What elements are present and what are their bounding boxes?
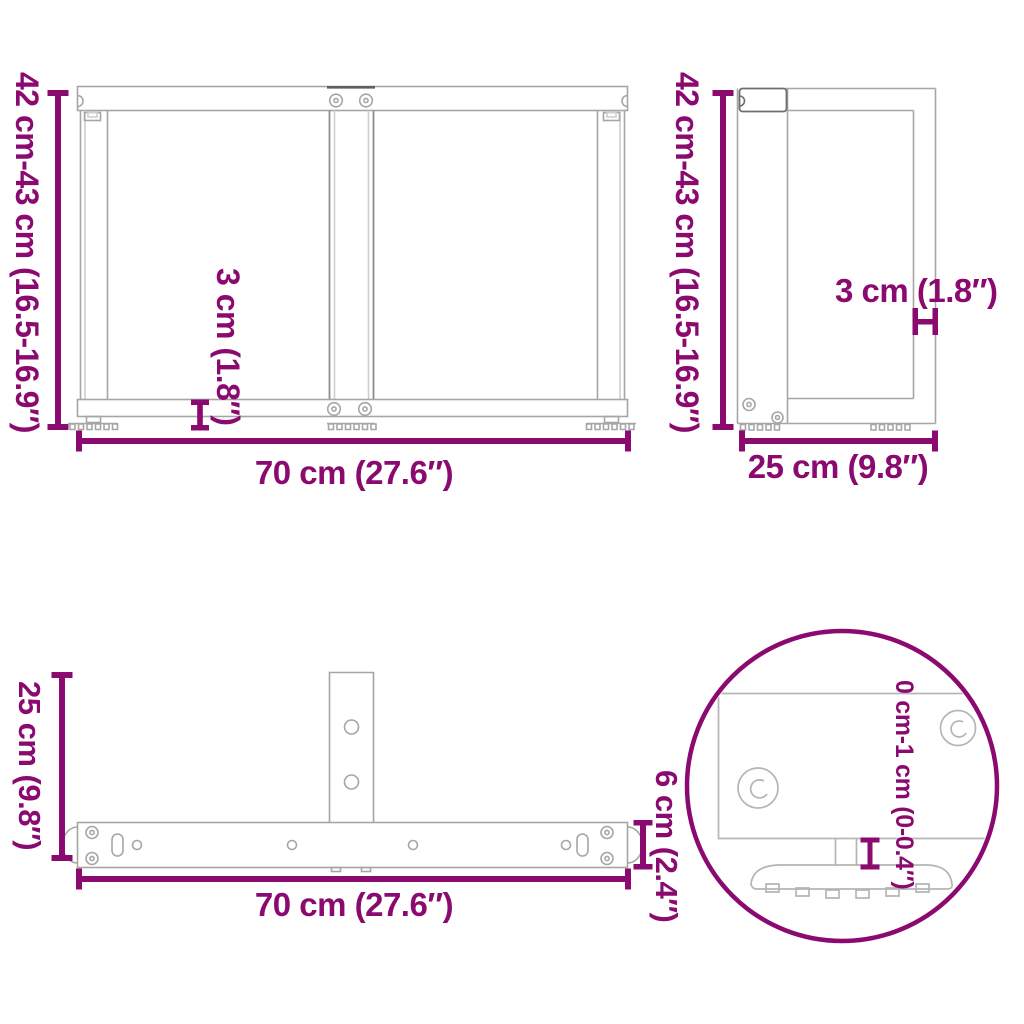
side-height-dimension-label: 42 cm-43 cm (16.5-16.9″)	[671, 72, 703, 433]
top-depth-dimension-label: 25 cm (9.8″)	[14, 681, 45, 850]
side-view-drawing	[738, 89, 936, 431]
front-width-dimension-label: 70 cm (27.6″)	[160, 456, 548, 489]
front-left-leg	[81, 111, 108, 400]
top-width-dimension-label: 70 cm (27.6″)	[160, 888, 548, 921]
side-arm-thickness-dimension-label: 3 cm (1.8″)	[835, 274, 997, 307]
slot-hole	[112, 834, 123, 856]
line-art-layer	[0, 0, 1024, 1024]
side-view-dimensions	[713, 90, 939, 452]
side-depth-dimension-label: 25 cm (9.8″)	[723, 450, 953, 483]
detail-circle-drawing	[687, 631, 1000, 941]
front-right-leg	[598, 111, 625, 400]
front-view-drawing	[68, 87, 636, 430]
top-view-bar	[78, 823, 628, 868]
front-center-column	[330, 111, 374, 400]
side-top-bracket	[740, 89, 787, 112]
screw-icon	[328, 403, 372, 416]
front-top-bar	[78, 87, 628, 111]
front-foot-height-dimension-label: 3 cm (1.8″)	[212, 268, 244, 425]
screw-icon	[86, 827, 613, 865]
top-view-drawing	[63, 673, 643, 872]
front-foot-bar	[78, 400, 628, 417]
detail-dimension	[861, 838, 880, 870]
front-left-notch	[78, 96, 84, 107]
detail-leg-end	[719, 694, 1000, 839]
dimension-diagram: 42 cm-43 cm (16.5-16.9″) 3 cm (1.8″) 70 …	[0, 0, 1024, 1024]
slot-hole	[577, 834, 588, 856]
screw-icon	[330, 94, 373, 107]
top-bar-width-dimension-label: 6 cm (2.4″)	[651, 770, 682, 922]
screw-icon	[743, 399, 783, 424]
top-view-dimensions	[52, 672, 653, 890]
front-height-dimension-label: 42 cm-43 cm (16.5-16.9″)	[11, 72, 43, 433]
front-view-dimensions	[48, 90, 632, 452]
front-right-notch	[622, 96, 628, 107]
detail-zoom-circle	[687, 631, 997, 941]
serrated-foot-pads	[68, 417, 636, 430]
adjustable-foot	[751, 865, 952, 889]
top-view-stem	[330, 673, 374, 823]
serrated-foot-pads	[741, 425, 911, 431]
detail-adjustable-foot-dimension-label: 0 cm-1 cm (0-0.4″)	[891, 680, 916, 889]
